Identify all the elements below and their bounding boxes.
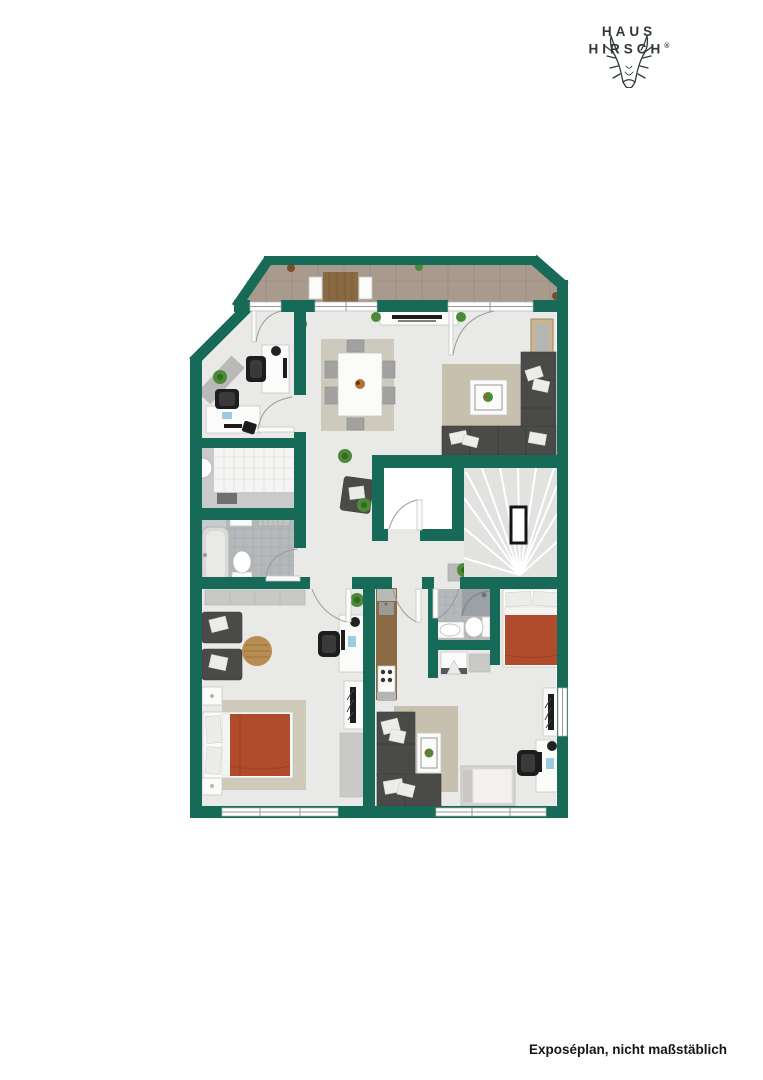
dining-set [321,339,395,431]
toilet-main [232,551,252,580]
kitchenette [376,588,397,701]
balcony [240,260,561,302]
room-bathroom-main [202,516,294,583]
floorplan [0,0,763,1080]
couch-set [442,352,556,455]
round-rug [242,636,272,666]
disclaimer-note: Exposéplan, nicht maßstäblich [529,1042,727,1057]
washing-machine [441,652,467,674]
toilet-small [465,617,490,637]
room-bathroom-small [436,589,490,674]
expose-page: HAUS HIRSCH® [0,0,763,1080]
shower [462,589,490,616]
kitchen-stove [217,493,237,504]
office-plant [213,370,227,384]
bathtub [202,527,229,583]
studio-coffee-table [417,733,441,773]
small-bath-sink [436,622,464,638]
room-kitchen [202,446,294,508]
laundry-counter [469,654,490,672]
bedroom-tv [344,681,364,729]
staircase [464,468,557,577]
double-bed-studio [503,589,561,667]
stair-newel [511,507,526,543]
coffee-table [470,380,507,415]
bedroom-mat [340,733,365,797]
single-bed-studio [461,766,515,806]
double-bed-main [203,712,293,778]
